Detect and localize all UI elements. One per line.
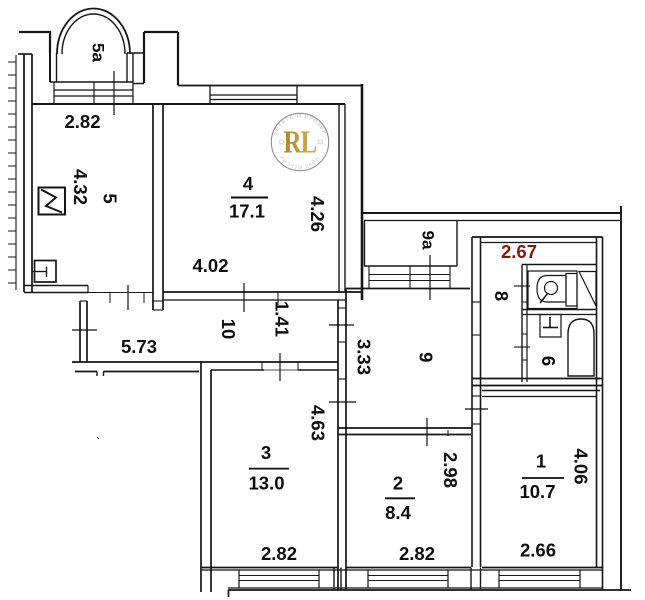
svg-text:10: 10 <box>218 319 239 340</box>
svg-text:6: 6 <box>538 356 559 366</box>
svg-text:2: 2 <box>393 473 403 494</box>
svg-text:8.4: 8.4 <box>385 502 411 523</box>
svg-text:1: 1 <box>536 451 546 472</box>
svg-text:13.0: 13.0 <box>248 473 284 494</box>
svg-text:4.63: 4.63 <box>308 405 329 441</box>
svg-text:8: 8 <box>491 291 512 301</box>
svg-text:2.66: 2.66 <box>520 540 556 561</box>
svg-text:10.7: 10.7 <box>519 481 555 502</box>
svg-text:9а: 9а <box>419 231 438 250</box>
svg-text:2.98: 2.98 <box>440 452 461 488</box>
svg-text:1.41: 1.41 <box>272 301 293 337</box>
svg-text:9: 9 <box>416 352 437 362</box>
svg-text:5а: 5а <box>89 43 108 62</box>
svg-text:5: 5 <box>100 193 121 203</box>
svg-text:4.26: 4.26 <box>307 196 328 232</box>
svg-text:4.32: 4.32 <box>70 169 91 205</box>
svg-text:4.06: 4.06 <box>571 448 592 484</box>
svg-text:2.82: 2.82 <box>261 543 297 564</box>
svg-text:2.82: 2.82 <box>399 543 435 564</box>
svg-text:3: 3 <box>261 442 271 463</box>
svg-text:RL: RL <box>283 125 316 161</box>
svg-text:2.82: 2.82 <box>64 111 100 132</box>
svg-text:17.1: 17.1 <box>229 201 265 222</box>
svg-text:5.73: 5.73 <box>121 336 157 357</box>
svg-text:4.02: 4.02 <box>192 255 228 276</box>
svg-text:3.33: 3.33 <box>354 339 375 375</box>
svg-text:4: 4 <box>243 173 254 194</box>
svg-text:2.67: 2.67 <box>501 241 537 262</box>
